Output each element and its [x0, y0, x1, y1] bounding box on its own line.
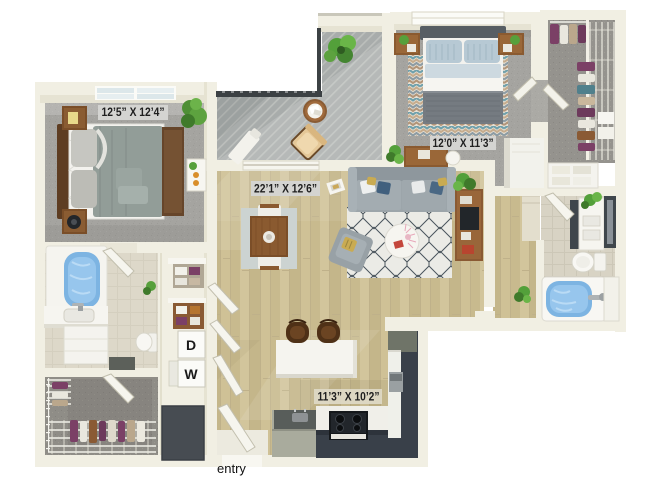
svg-text:W: W: [184, 366, 198, 382]
svg-text:12’5” X 12’4”: 12’5” X 12’4”: [102, 107, 165, 119]
svg-text:22’1” X 12’6”: 22’1” X 12’6”: [254, 184, 317, 196]
svg-text:11’3” X 10’2”: 11’3” X 10’2”: [318, 392, 380, 404]
svg-text:entry: entry: [217, 461, 246, 476]
svg-text:D: D: [186, 337, 196, 353]
svg-text:12’0” X 11’3”: 12’0” X 11’3”: [433, 138, 494, 150]
